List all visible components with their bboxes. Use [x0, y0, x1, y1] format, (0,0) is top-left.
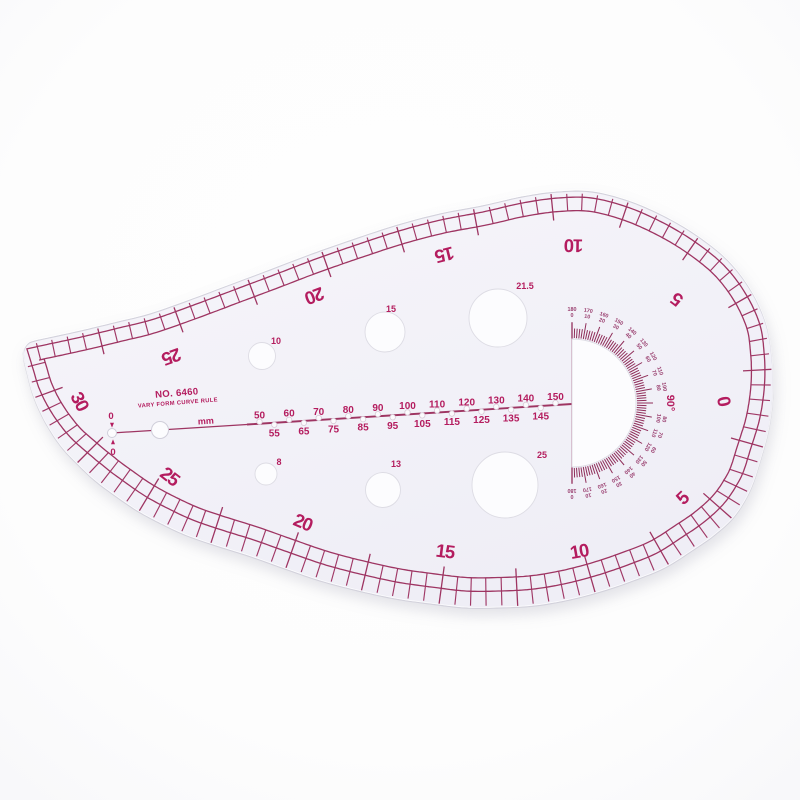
svg-text:13: 13	[391, 459, 401, 469]
svg-text:95: 95	[387, 421, 399, 432]
svg-text:80: 80	[654, 384, 661, 391]
svg-text:180: 180	[568, 487, 577, 493]
svg-text:10: 10	[564, 235, 583, 256]
svg-text:55: 55	[269, 428, 281, 439]
svg-text:135: 135	[503, 413, 520, 424]
svg-text:0: 0	[108, 411, 113, 422]
svg-text:0: 0	[110, 447, 115, 458]
svg-text:8: 8	[276, 457, 281, 467]
svg-text:105: 105	[414, 419, 431, 430]
svg-text:0: 0	[571, 313, 574, 319]
svg-text:10: 10	[271, 336, 281, 346]
svg-text:25: 25	[537, 450, 547, 460]
svg-text:125: 125	[473, 415, 490, 426]
svg-text:mm: mm	[198, 416, 215, 427]
svg-text:65: 65	[298, 426, 310, 437]
svg-text:85: 85	[358, 423, 370, 434]
svg-text:15: 15	[435, 540, 457, 563]
svg-text:90°: 90°	[664, 395, 676, 412]
svg-text:75: 75	[328, 425, 340, 436]
svg-text:10: 10	[584, 314, 591, 321]
svg-text:21.5: 21.5	[516, 281, 534, 291]
svg-text:145: 145	[532, 412, 549, 423]
svg-text:115: 115	[444, 417, 461, 428]
svg-text:15: 15	[386, 304, 396, 314]
